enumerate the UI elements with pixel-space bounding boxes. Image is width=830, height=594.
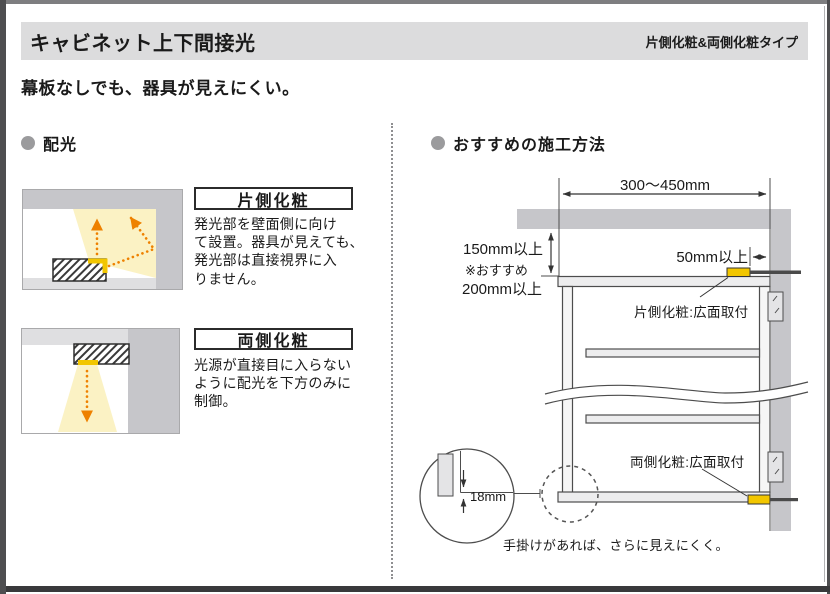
diagram-both-side-finish [21, 328, 180, 434]
catalog-page: キャビネット上下間接光 片側化粧&両側化粧タイプ 幕板なしでも、器具が見えにくい… [0, 0, 830, 594]
top-fixture [727, 268, 750, 277]
panel-section-detail [438, 454, 453, 496]
ceiling-surface [23, 190, 182, 209]
light-emitting-part [103, 259, 108, 274]
bracket-marks [773, 296, 779, 313]
type-label: 片側化粧&両側化粧タイプ [646, 32, 798, 51]
cabinet-shelf [586, 349, 760, 357]
dim-clearance-note: ※おすすめ [465, 260, 528, 279]
dim-clearance-label: 150mm以上 [463, 238, 543, 259]
pointer-line-bottom [702, 469, 747, 496]
pointer-line-top [700, 278, 728, 298]
break-line [545, 382, 808, 394]
ceiling-surface [22, 329, 128, 345]
dim-thickness-label: 18mm [470, 489, 506, 504]
page-title: キャビネット上下間接光 [30, 27, 256, 56]
diagram-one-side-svg [23, 190, 182, 289]
section-title-distribution: 配光 [43, 131, 77, 155]
wall-surface [156, 209, 182, 289]
header-bar: キャビネット上下間接光 片側化粧&両側化粧タイプ [21, 22, 808, 60]
bottom-fixture-label: 両側化粧:広面取付 [630, 451, 744, 471]
section-divider [391, 123, 393, 579]
break-line [545, 392, 808, 404]
frame-top-edge [0, 0, 830, 4]
dim-clearance-recommended: 200mm以上 [462, 278, 542, 299]
section-bullet-icon [21, 136, 35, 150]
light-beam-area [58, 364, 117, 432]
break-band [545, 382, 808, 404]
detail-target-circle [542, 466, 598, 522]
dim-width-label: 300〜450mm [560, 174, 770, 195]
section-title-installation: おすすめの施工方法 [453, 131, 606, 155]
wall-surface [128, 329, 179, 433]
counter-edge-line-top [750, 271, 801, 275]
section-head-distribution: 配光 [21, 131, 77, 155]
label-box-one-side: 片側化粧 [194, 187, 353, 210]
top-fixture-label: 片側化粧:広面取付 [634, 301, 748, 321]
cabinet-back-panel [760, 287, 771, 493]
ceiling-bar [517, 209, 791, 229]
description-both-side: 光源が直接目に入らない ように配光を下方のみに 制御。 [194, 356, 366, 411]
frame-left-edge [0, 0, 6, 594]
diagram-one-side-finish [22, 189, 183, 290]
light-emitting-part [78, 360, 98, 365]
diagram-both-side-svg [22, 329, 179, 433]
frame-bottom-bar [6, 586, 830, 592]
bottom-fixture [748, 495, 770, 504]
frame-right-line [824, 6, 825, 582]
handle-note: 手掛けがあれば、さらに見えにくく。 [503, 535, 729, 554]
cabinet-top-board [558, 277, 770, 287]
section-bullet-icon [431, 136, 445, 150]
dim-side-clearance-label: 50mm以上 [660, 246, 748, 267]
cabinet-bottom-board [558, 492, 770, 502]
section-head-installation: おすすめの施工方法 [431, 131, 606, 155]
cabinet-shelf [586, 415, 760, 423]
description-one-side: 発光部を壁面側に向け て設置。器具が見えても、 発光部は直接視界に入 りません。 [194, 215, 366, 288]
cabinet-front-panel [563, 287, 573, 493]
lead-text: 幕板なしでも、器具が見えにくい。 [21, 74, 300, 99]
bracket-marks [773, 457, 779, 474]
label-one-side: 片側化粧 [237, 187, 309, 211]
label-box-both-side: 両側化粧 [194, 328, 353, 350]
counter-edge-line-bottom [770, 498, 798, 501]
wall-bracket [768, 292, 783, 321]
label-both-side: 両側化粧 [237, 327, 309, 351]
wall-bracket [768, 452, 783, 482]
wall-bar [771, 229, 791, 531]
